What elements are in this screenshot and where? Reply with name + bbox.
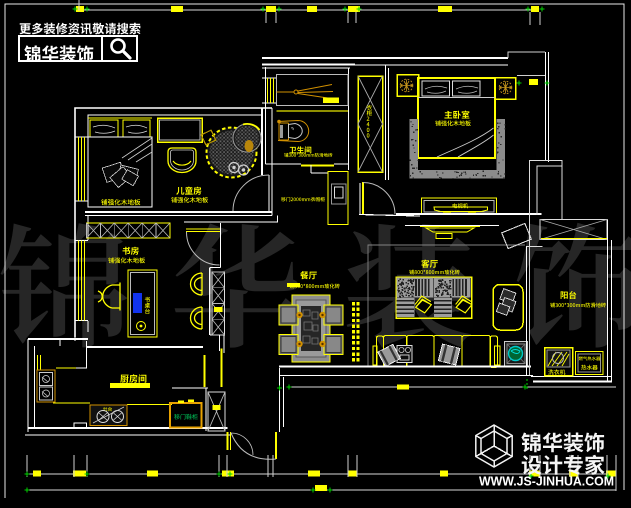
svg-text:WWW.JS-JINHUA.COM: WWW.JS-JINHUA.COM: [479, 474, 614, 489]
